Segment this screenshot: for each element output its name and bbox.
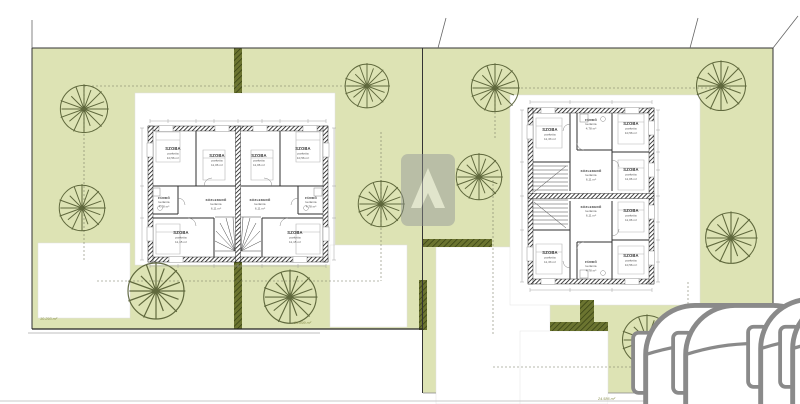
room-area: 4,78 m² [159,204,170,208]
room-label: SZOBAparketta11,15 m² [287,230,302,244]
room-area: 6,11 m² [255,206,265,210]
watermark-logo [401,154,455,226]
room-label: FÜRDŐkerámia4,78 m² [585,259,597,272]
room-area: 11,33 m² [544,137,556,141]
right-hedge-step-vertical [580,300,594,324]
room-label: FÜRDŐkerámia4,78 m² [305,195,317,208]
room-area: 10,56 m² [167,156,179,160]
room-label: SZOBAparketta11,06 m² [209,153,224,167]
room-name: SZOBA [295,146,310,151]
room-label: SZOBAparketta10,56 m² [623,253,638,267]
room-label: SZOBAparketta11,06 m² [623,167,638,181]
room-name: SZOBA [173,230,188,235]
room-area: 10,56 m² [625,131,637,135]
right-plot-area-label: 24.586 m² [597,397,616,401]
room-name: SZOBA [209,153,224,158]
room-name: SZOBA [623,167,638,172]
site-plan-canvas: SZOBAparketta10,56 m² SZOBAparketta11,06… [0,0,800,404]
room-label: SZOBAparketta11,33 m² [542,127,557,141]
room-area: 11,06 m² [625,218,637,222]
room-label: SZOBAparketta11,06 m² [623,208,638,222]
room-area: 11,33 m² [544,260,556,264]
room-label: SZOBAparketta10,56 m² [623,121,638,135]
room-label: FÜRDŐkerámia4,78 m² [585,117,597,130]
room-name: SZOBA [542,250,557,255]
room-name: SZOBA [623,253,638,258]
room-area: 11,06 m² [625,177,637,181]
room-area: 10,56 m² [297,156,309,160]
room-area: 6,11 m² [211,206,221,210]
room-label: SZOBAparketta10,56 m² [165,146,180,160]
room-label: SZOBAparketta10,56 m² [295,146,310,160]
room-name: SZOBA [165,146,180,151]
room-area: 6,11 m² [586,177,596,181]
room-label: SZOBAparketta11,06 m² [251,153,266,167]
room-name: SZOBA [542,127,557,132]
left-building [140,119,336,268]
room-area: 11,15 m² [175,240,187,244]
room-area: 11,15 m² [289,240,301,244]
left-parking-pad-east [330,245,407,327]
room-name: SZOBA [623,208,638,213]
room-area: 10,56 m² [625,263,637,267]
parcel-corner-marks [32,16,798,48]
room-name: SZOBA [623,121,638,126]
room-area: 4,78 m² [306,204,317,208]
room-area: 11,06 m² [211,163,223,167]
room-label: FÜRDŐkerámia4,78 m² [158,195,170,208]
room-area: 4,78 m² [586,126,597,130]
room-label: SZOBAparketta11,15 m² [173,230,188,244]
left-plot-corner-label: 23.899 m² [293,321,312,325]
room-name: SZOBA [287,230,302,235]
room-label: SZOBAparketta11,33 m² [542,250,557,264]
right-hedge-step-horizontal [550,322,608,331]
plot-divider-hedge-south [234,262,242,329]
room-area: 6,11 m² [586,213,596,217]
room-area: 4,78 m² [586,268,597,272]
room-area: 11,06 m² [253,163,265,167]
room-name: SZOBA [251,153,266,158]
left-plot-area-label: 10.293 m² [40,317,58,321]
right-hedge-north [423,239,492,247]
right-parking-bay-south [520,331,608,404]
